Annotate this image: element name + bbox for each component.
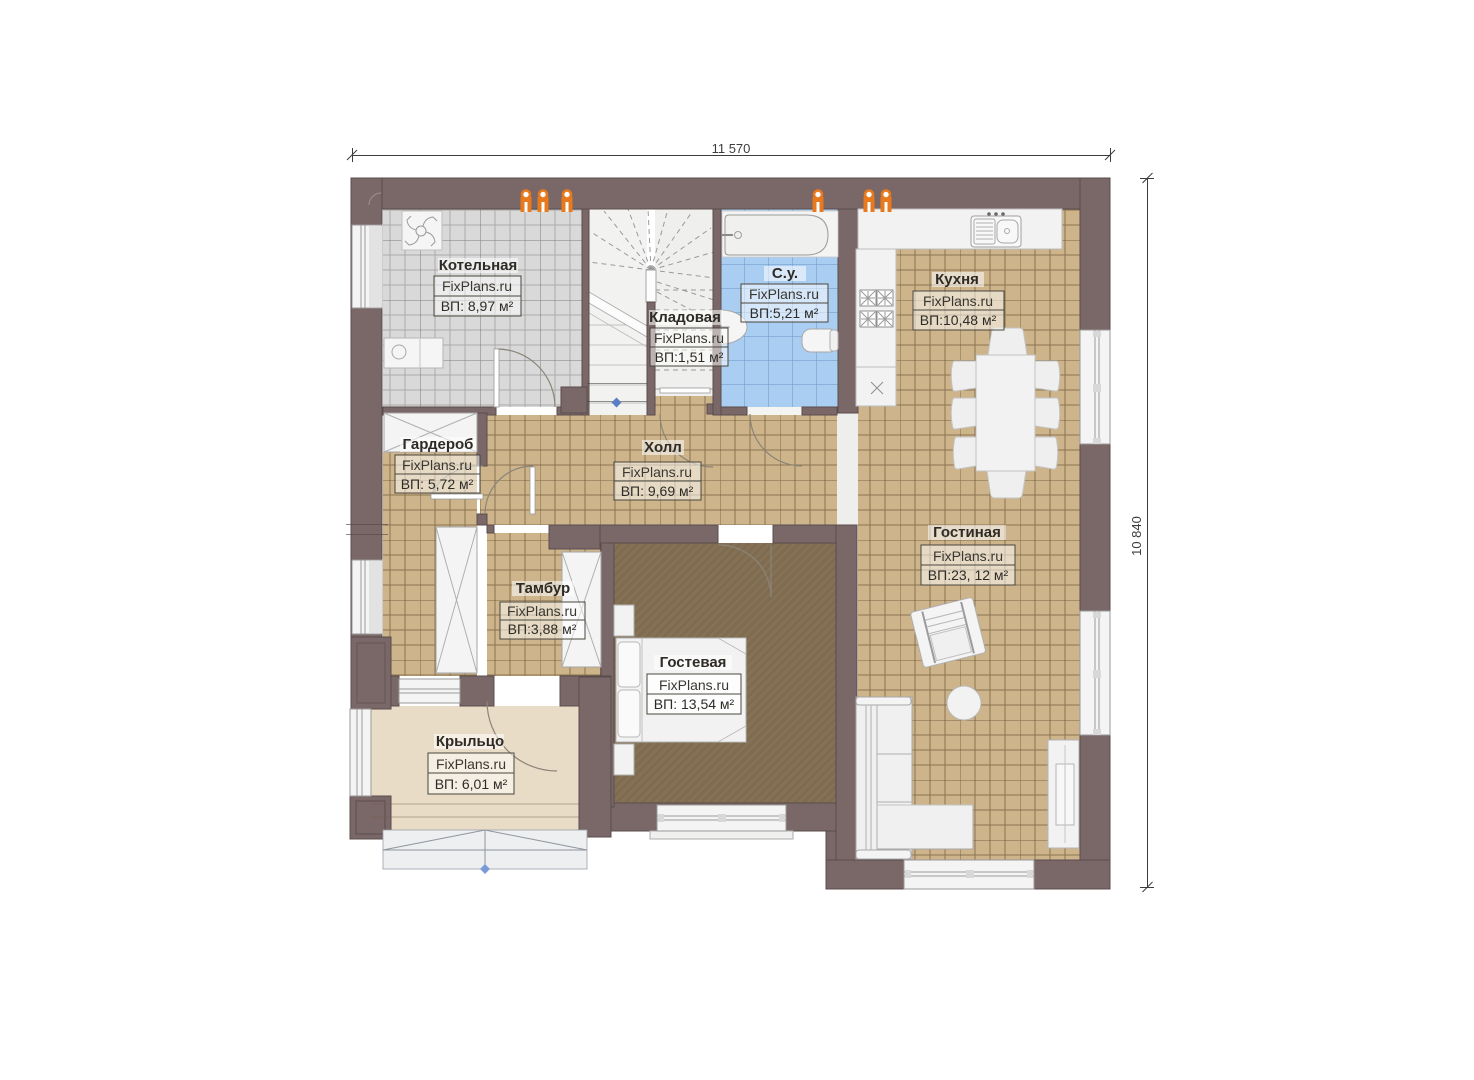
svg-text:Гостевая: Гостевая xyxy=(660,654,727,671)
svg-text:Гостиная: Гостиная xyxy=(933,524,1001,541)
svg-text:FixPlans.ru: FixPlans.ru xyxy=(402,457,472,473)
svg-text:ВП:10,48 м²: ВП:10,48 м² xyxy=(920,312,997,328)
svg-text:11 570: 11 570 xyxy=(712,141,751,156)
svg-text:Тамбур: Тамбур xyxy=(516,580,570,597)
svg-text:Кладовая: Кладовая xyxy=(649,309,721,326)
svg-text:Гардероб: Гардероб xyxy=(403,436,474,453)
svg-text:ВП:1,51 м²: ВП:1,51 м² xyxy=(655,349,724,365)
svg-text:FixPlans.ru: FixPlans.ru xyxy=(654,330,724,346)
svg-text:ВП:5,21 м²: ВП:5,21 м² xyxy=(750,305,819,321)
svg-text:ВП: 6,01 м²: ВП: 6,01 м² xyxy=(435,776,508,792)
svg-text:FixPlans.ru: FixPlans.ru xyxy=(933,548,1003,564)
svg-text:FixPlans.ru: FixPlans.ru xyxy=(749,286,819,302)
svg-text:С.у.: С.у. xyxy=(772,265,798,282)
svg-text:ВП: 5,72 м²: ВП: 5,72 м² xyxy=(401,476,474,492)
svg-text:10 840: 10 840 xyxy=(1129,516,1144,556)
svg-text:FixPlans.ru: FixPlans.ru xyxy=(659,677,729,693)
svg-text:FixPlans.ru: FixPlans.ru xyxy=(436,756,506,772)
svg-text:FixPlans.ru: FixPlans.ru xyxy=(622,464,692,480)
svg-text:Крыльцо: Крыльцо xyxy=(436,733,504,750)
svg-text:ВП:3,88 м²: ВП:3,88 м² xyxy=(508,621,577,637)
svg-text:FixPlans.ru: FixPlans.ru xyxy=(507,603,577,619)
svg-text:ВП: 9,69 м²: ВП: 9,69 м² xyxy=(621,483,694,499)
svg-text:FixPlans.ru: FixPlans.ru xyxy=(442,278,512,294)
svg-text:ВП: 8,97 м²: ВП: 8,97 м² xyxy=(441,298,514,314)
svg-text:Котельная: Котельная xyxy=(439,257,518,274)
svg-text:Холл: Холл xyxy=(644,439,682,456)
svg-text:Кухня: Кухня xyxy=(935,271,979,288)
svg-text:ВП:23, 12 м²: ВП:23, 12 м² xyxy=(928,567,1009,583)
svg-text:ВП: 13,54 м²: ВП: 13,54 м² xyxy=(654,696,735,712)
svg-text:FixPlans.ru: FixPlans.ru xyxy=(923,293,993,309)
